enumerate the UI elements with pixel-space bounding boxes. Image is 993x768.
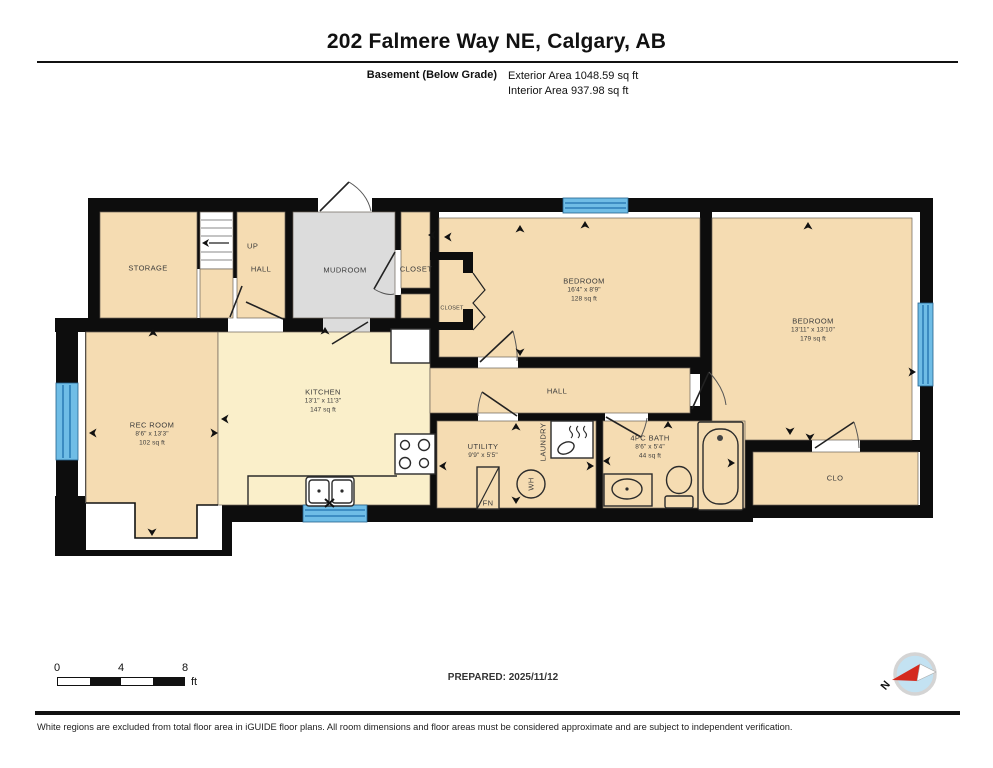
room-label-kitchen: KITCHEN 13'1" x 11'3" 147 sq ft — [305, 388, 341, 415]
washer-icon — [551, 421, 593, 458]
kitchen-sink-icon — [306, 477, 354, 507]
floor-plan-page: { "header": { "title": "202 Falmere Way … — [0, 0, 993, 768]
room-label-laundry: LAUNDRY — [539, 423, 548, 462]
room-label-mudroom: MUDROOM — [323, 266, 366, 275]
stove-icon — [395, 434, 435, 474]
bath-sink-icon — [604, 474, 652, 506]
room-label-bedroom1-closet: CLOSET — [440, 305, 463, 314]
room-label-hall-main: HALL — [547, 387, 567, 396]
room-label-hall-upper: HALL — [251, 265, 271, 274]
room-label-clo: CLO — [827, 474, 844, 483]
room-label-closet: CLOSET — [400, 265, 432, 274]
footer-divider — [35, 711, 960, 715]
room-label-utility: UTILITY 9'9" x 5'5" — [468, 442, 499, 460]
toilet-icon — [665, 467, 693, 509]
scale-unit-label: ft — [191, 676, 197, 688]
prepared-date: PREPARED: 2025/11/12 — [448, 672, 558, 683]
stairs-up-label: UP — [247, 242, 258, 251]
room-label-bedroom2: BEDROOM 13'11" x 13'10" 179 sq ft — [791, 317, 835, 344]
floor-plan-graphic — [0, 0, 993, 768]
furnace-label: FN — [483, 499, 494, 508]
water-heater-label: WH — [527, 477, 536, 490]
room-label-bedroom1: BEDROOM 16'4" x 8'9" 128 sq ft — [563, 277, 605, 304]
disclaimer-text: White regions are excluded from total fl… — [37, 722, 967, 732]
compass-north-label: N — [879, 679, 893, 693]
scale-tick-4: 4 — [118, 662, 124, 674]
room-label-bath: 4PC BATH 8'6" x 5'4" 44 sq ft — [630, 434, 669, 461]
scale-bar — [57, 677, 185, 686]
compass-icon: N — [875, 645, 950, 705]
rooms-layer — [86, 212, 918, 538]
scale-tick-0: 0 — [54, 662, 60, 674]
bathtub-icon — [698, 422, 743, 510]
scale-tick-8: 8 — [182, 662, 188, 674]
fridge-icon — [391, 329, 430, 363]
room-label-rec-room: REC ROOM 8'6" x 13'3" 102 sq ft — [130, 421, 174, 448]
room-label-storage: STORAGE — [128, 264, 167, 273]
